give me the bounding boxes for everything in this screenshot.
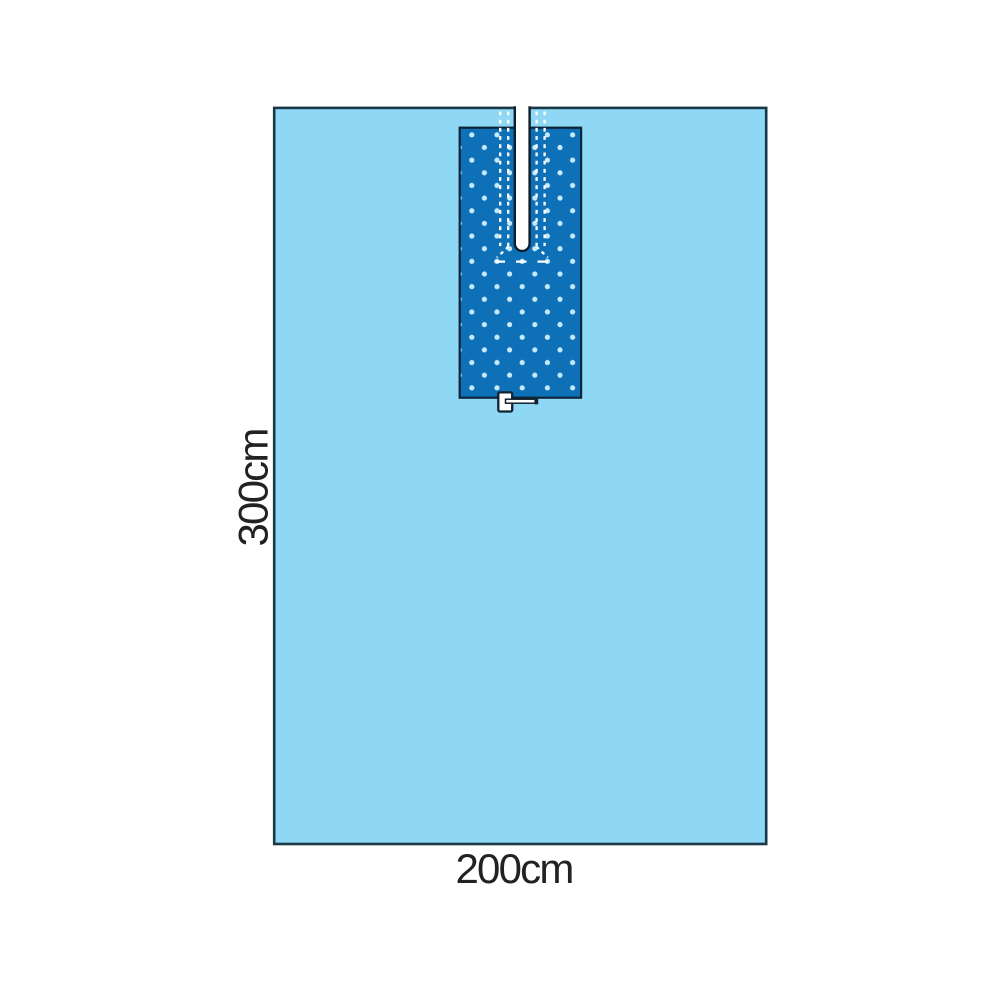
svg-text:300cm: 300cm (230, 429, 277, 546)
svg-text:200cm: 200cm (455, 845, 572, 892)
